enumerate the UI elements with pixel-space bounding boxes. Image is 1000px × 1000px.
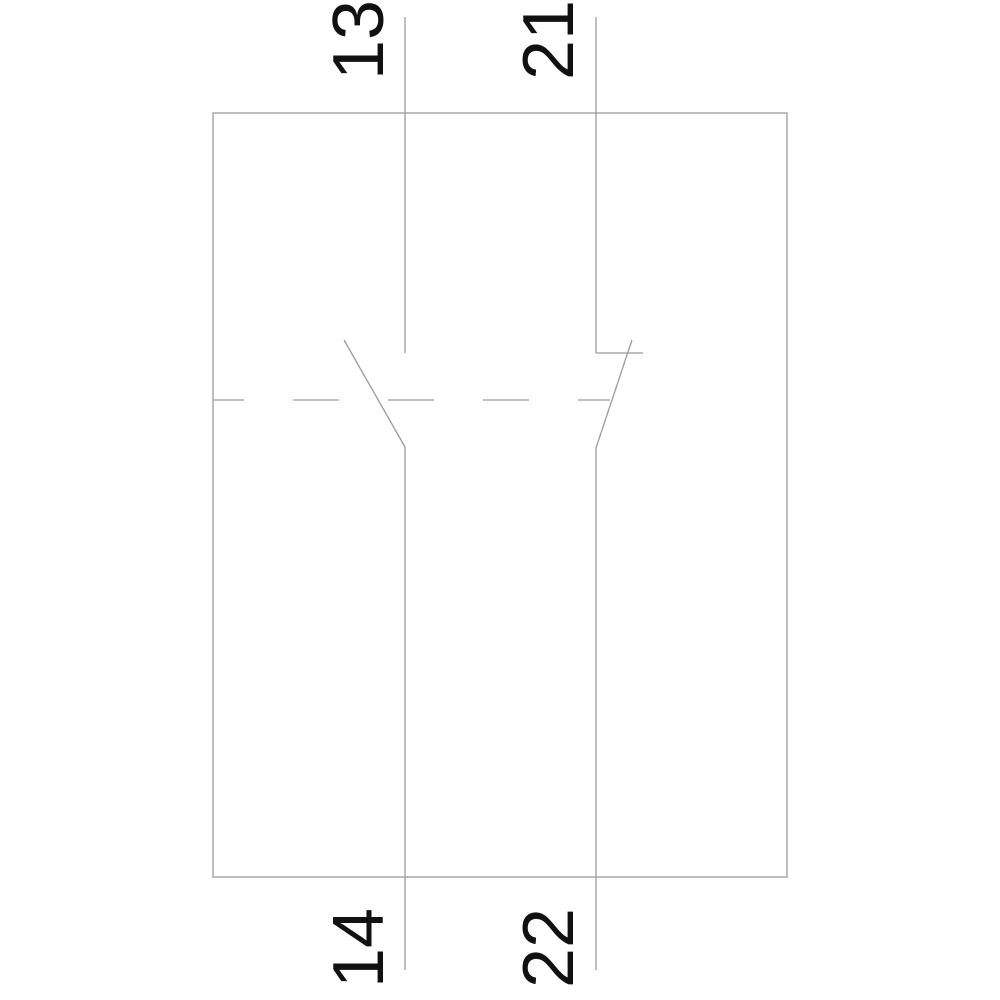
no-contact-arm xyxy=(344,340,405,447)
terminal-label-22: 22 xyxy=(509,908,589,988)
nc-contact-21-22 xyxy=(596,17,643,970)
terminal-label-14: 14 xyxy=(319,908,399,988)
schematic-page: 13 21 14 22 xyxy=(0,0,1000,1000)
contact-block-schematic: 13 21 14 22 xyxy=(0,0,1000,1000)
nc-contact-arm xyxy=(596,340,632,448)
terminal-label-21: 21 xyxy=(509,0,589,80)
terminal-label-13: 13 xyxy=(319,0,399,80)
no-contact-13-14 xyxy=(344,17,405,970)
device-outline xyxy=(213,113,787,877)
